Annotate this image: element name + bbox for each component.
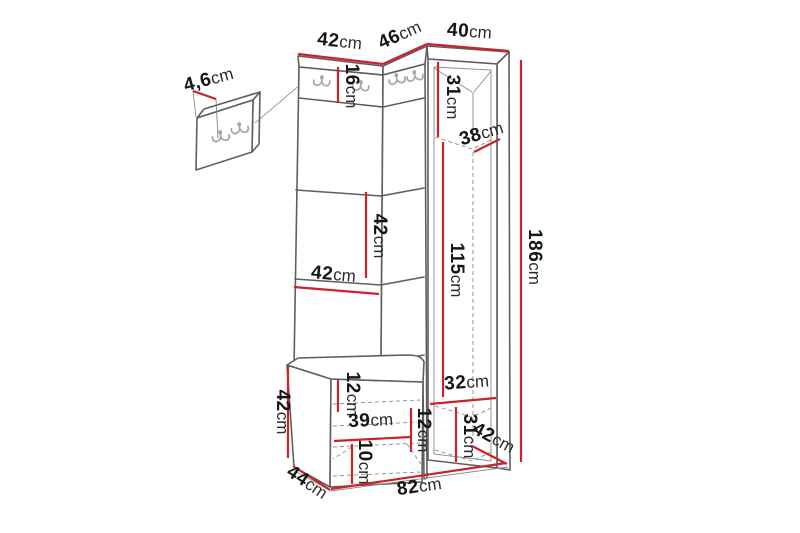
corner-right-side-face <box>497 52 510 470</box>
dim-bench-bottom-gap: 10cm <box>352 440 375 485</box>
dim-label: 39cm <box>348 409 394 432</box>
corner-wardrobe-unit <box>428 52 510 470</box>
dim-label: 4,6cm <box>181 63 235 96</box>
dim-detail-panel-depth: 4,6cm <box>181 63 235 99</box>
dim-label: 40cm <box>446 19 492 43</box>
dim-label: 10cm <box>354 440 375 485</box>
dim-total-height: 186cm <box>521 60 545 462</box>
extension-line <box>193 91 196 117</box>
diagram-canvas: 4,6cm 42cm 46cm 40cm 16cm 31cm 38cm <box>0 0 800 533</box>
dim-label: 186cm <box>524 229 545 285</box>
furniture-dimension-diagram: 4,6cm 42cm 46cm 40cm 16cm 31cm 38cm <box>0 0 800 533</box>
dim-label: 42cm <box>310 262 356 287</box>
dim-bench-right-gap: 12cm <box>411 408 434 453</box>
dim-label: 42cm <box>369 214 390 259</box>
dim-label: 16cm <box>341 64 362 109</box>
wall-hook-panel-detail <box>193 79 307 170</box>
dim-label: 115cm <box>446 243 467 298</box>
dim-label: 12cm <box>413 408 434 453</box>
dim-label: 31cm <box>442 75 463 120</box>
dim-label: 42cm <box>272 390 293 435</box>
dim-label: 42cm <box>316 29 363 55</box>
